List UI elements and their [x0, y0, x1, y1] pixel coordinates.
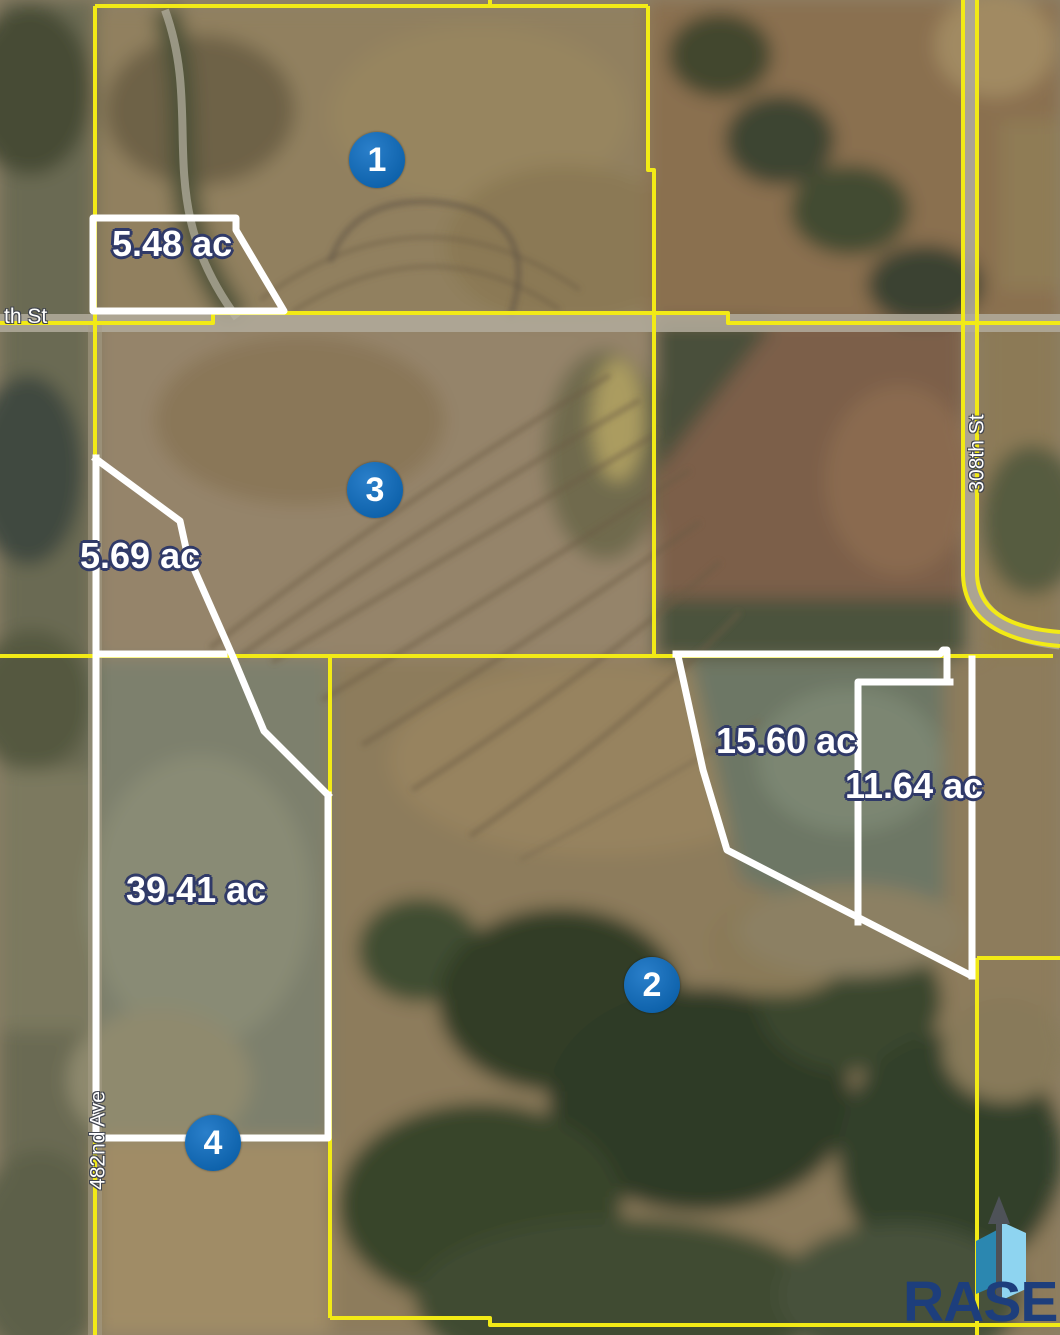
parcel-marker-1[interactable]: 1	[349, 132, 405, 188]
parcel-marker-2-number: 2	[643, 966, 662, 1005]
parcel-marker-4[interactable]: 4	[185, 1115, 241, 1171]
acreage-label-15-60: 15.60 ac	[716, 723, 856, 759]
map-viewport: 5.48 ac 5.69 ac 15.60 ac 11.64 ac 39.41 …	[0, 0, 1060, 1335]
street-label-482nd: 482nd Ave	[88, 1085, 109, 1197]
parcel-marker-3[interactable]: 3	[347, 462, 403, 518]
street-label-west: th St	[4, 306, 47, 327]
parcel-marker-4-number: 4	[204, 1124, 223, 1163]
acreage-label-5-69: 5.69 ac	[80, 538, 200, 574]
rase-logo-text: RASE	[903, 1274, 1060, 1331]
parcel-boundaries	[0, 0, 1060, 1335]
acreage-label-11-64: 11.64 ac	[845, 768, 983, 804]
parcel-marker-1-number: 1	[368, 141, 387, 180]
parcel-outline-15-60-southwest	[678, 656, 968, 974]
acreage-label-5-48: 5.48 ac	[112, 226, 232, 262]
acreage-label-39-41: 39.41 ac	[126, 872, 266, 908]
street-label-308th: 308th St	[967, 399, 988, 509]
parcel-outline-39-41-east-south	[96, 795, 328, 1138]
rase-logo: RASE	[898, 1188, 1060, 1335]
white-parcel-outlines	[93, 218, 972, 1138]
parcel-marker-2[interactable]: 2	[624, 957, 680, 1013]
parcel-outline-15-60-north	[676, 650, 947, 682]
parcel-marker-3-number: 3	[366, 471, 385, 510]
parcel-outline-5-69-ac	[96, 459, 328, 795]
